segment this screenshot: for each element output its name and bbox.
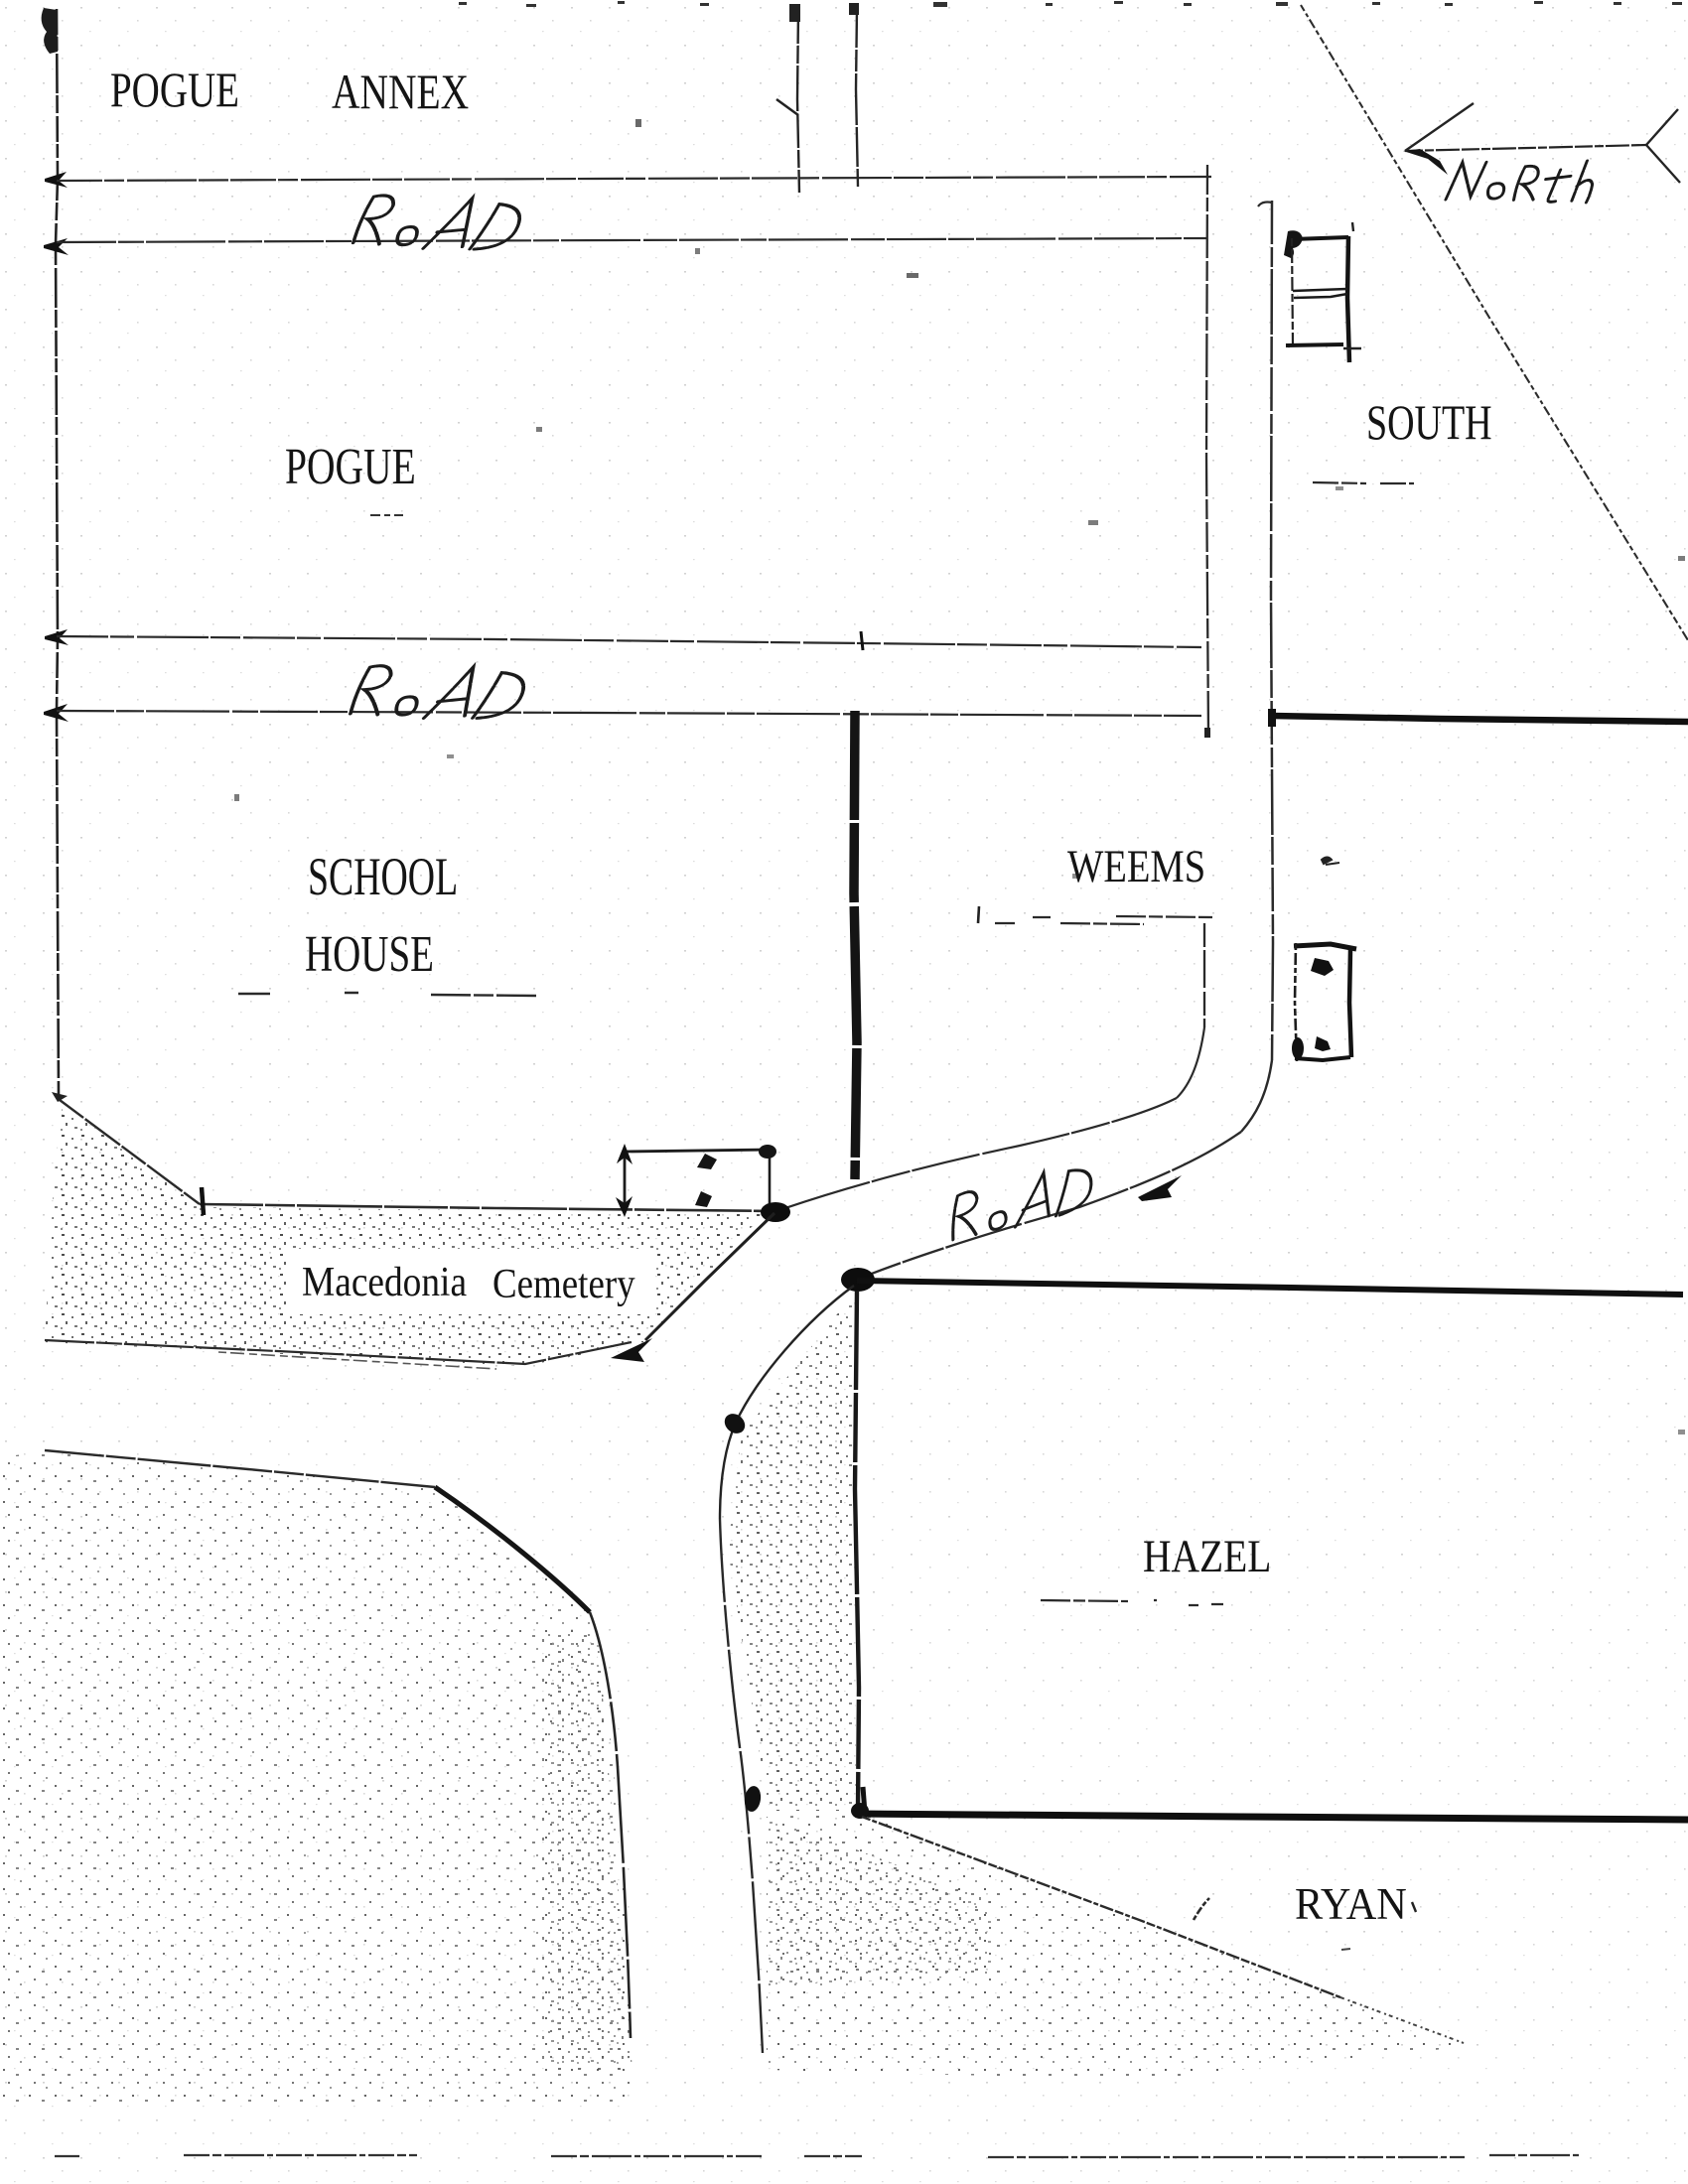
svg-text:HOUSE: HOUSE xyxy=(305,925,434,983)
svg-text:RYAN: RYAN xyxy=(1295,1878,1407,1929)
svg-text:Cemetery: Cemetery xyxy=(492,1261,635,1307)
svg-text:ANNEX: ANNEX xyxy=(332,65,469,119)
svg-text:WEEMS: WEEMS xyxy=(1067,842,1205,892)
svg-text:HAZEL: HAZEL xyxy=(1143,1531,1271,1582)
svg-text:POGUE: POGUE xyxy=(110,62,239,117)
svg-text:POGUE: POGUE xyxy=(285,438,416,494)
svg-text:SOUTH: SOUTH xyxy=(1366,394,1492,450)
svg-text:SCHOOL: SCHOOL xyxy=(308,847,458,906)
svg-text:Macedonia: Macedonia xyxy=(302,1259,467,1304)
